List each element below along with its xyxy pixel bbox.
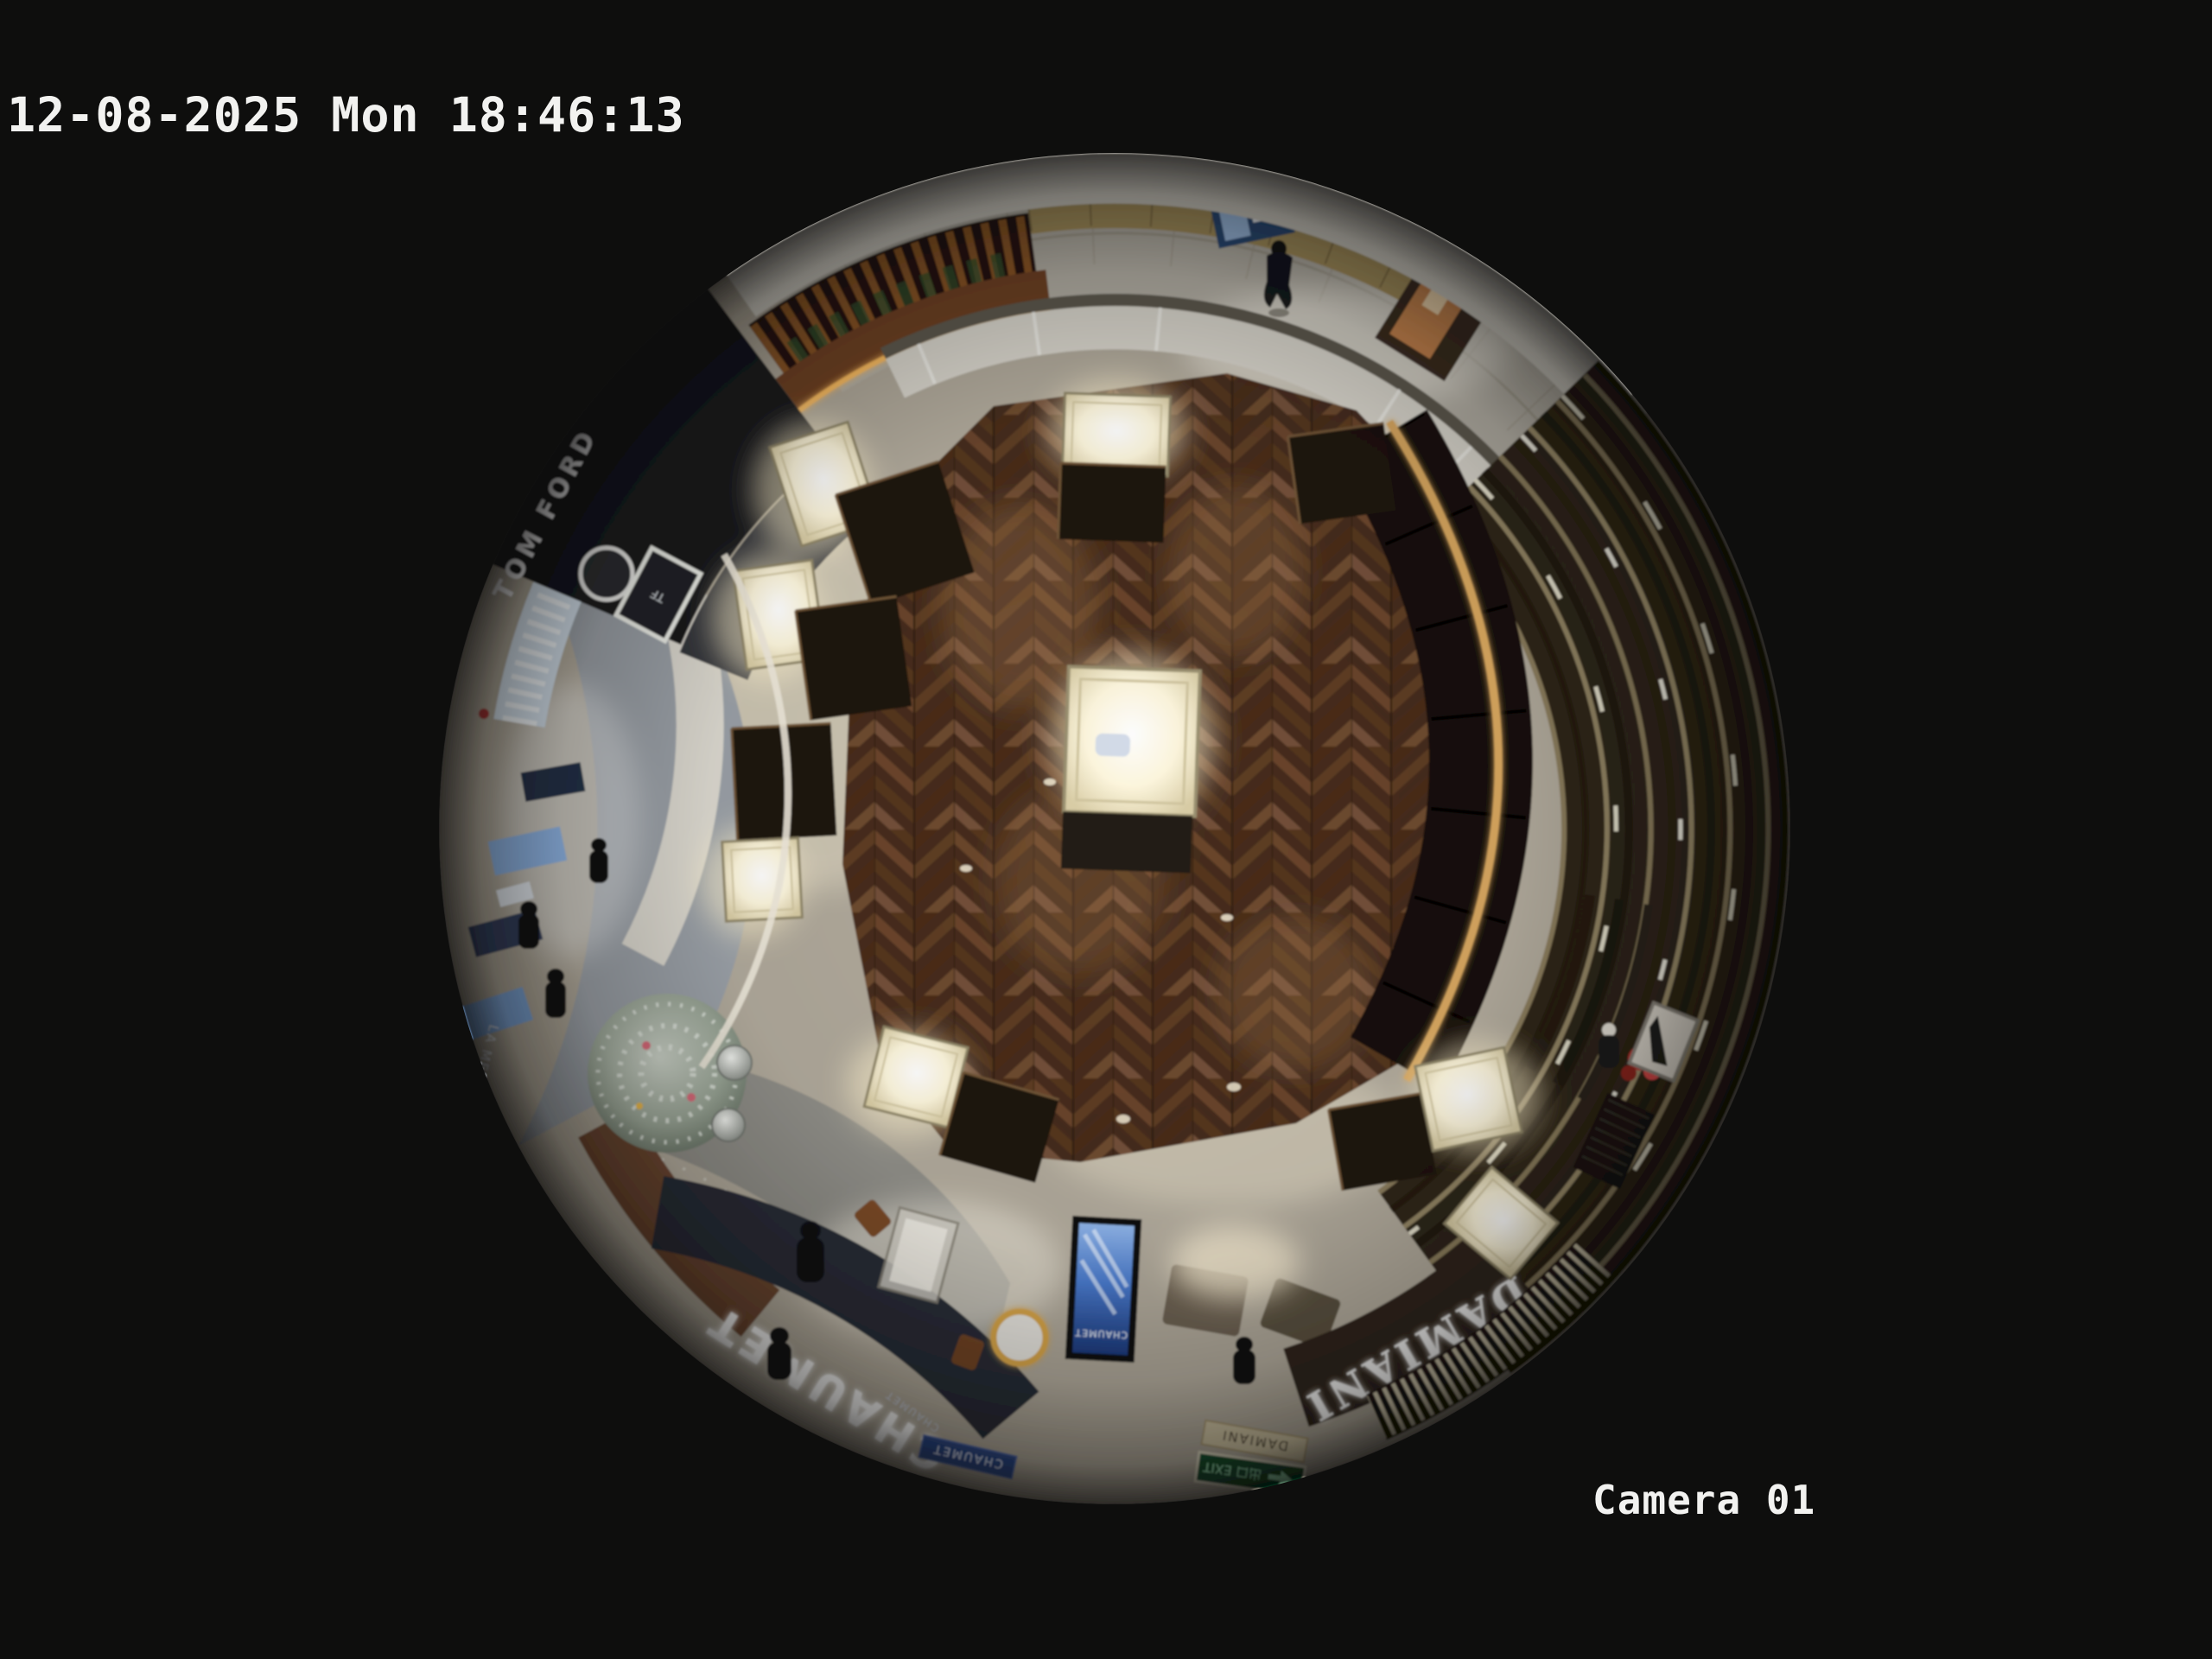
osd-camera-label: Camera 01 [1592, 1477, 1815, 1523]
cctv-frame: LA MER TOM FORD TF [0, 0, 2212, 1659]
lens-vignette [439, 153, 1790, 1504]
osd-timestamp: 12-08-2025 Mon 18:46:13 [7, 87, 685, 143]
fisheye-view: LA MER TOM FORD TF [439, 153, 1790, 1504]
camera-view: LA MER TOM FORD TF [0, 0, 2212, 1659]
